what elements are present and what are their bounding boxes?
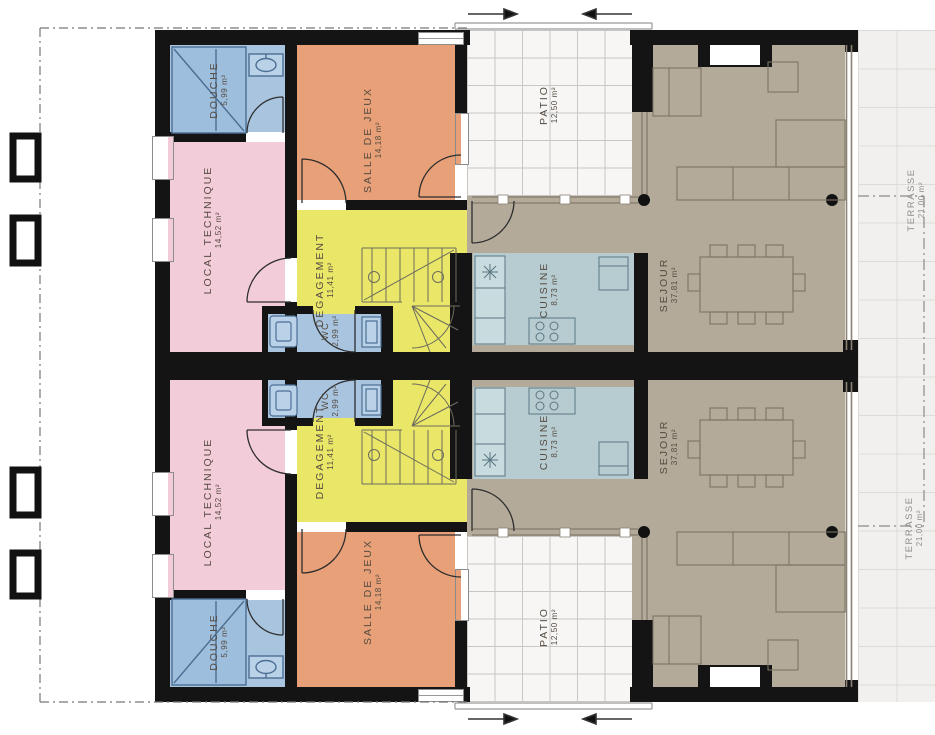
window-left-4: [152, 554, 174, 598]
wall: [381, 380, 393, 426]
wall: [285, 474, 297, 687]
fireplace-niche-bottom: [710, 667, 760, 687]
window-patio-bottom: [455, 569, 469, 621]
room-label-salle-de-jeux-bottom: SALLE DE JEUX14,18 m²: [354, 522, 390, 662]
wall: [450, 380, 472, 479]
room-label-patio-bottom: PATIO12,50 m²: [530, 557, 566, 697]
wall: [843, 340, 858, 392]
window-left-3: [152, 472, 174, 516]
room-label-patio-top: PATIO12,50 m²: [530, 35, 566, 175]
room-label-local-technique-bottom: LOCAL TECHNIQUE14,52 m²: [194, 432, 230, 572]
wall: [632, 45, 653, 112]
window-left-2: [152, 218, 174, 262]
room-label-sejour-bottom: SEJOUR37,81 m²: [650, 377, 686, 517]
wall: [634, 380, 648, 479]
wall: [845, 30, 858, 52]
fireplace-niche-top: [710, 45, 760, 65]
window-patio-top: [455, 113, 469, 165]
room-label-wc-bottom: WC2,99 m²: [312, 331, 348, 471]
room-label-salle-de-jeux-top: SALLE DE JEUX14,18 m²: [354, 70, 390, 210]
room-label-douche-top: DOUCHE5,99 m²: [200, 20, 236, 160]
room-label-cuisine-bottom: CUISINE8,73 m²: [530, 372, 566, 512]
party-wall: [155, 352, 855, 380]
floor-plan: DOUCHE5,99 m² LOCAL TECHNIQUE14,52 m² SA…: [0, 0, 935, 735]
room-label-terrasse-bottom: TERRASSE21,00 m²: [896, 458, 932, 598]
wall: [450, 253, 472, 352]
window-top: [418, 32, 464, 45]
boundary-markers: [13, 136, 38, 596]
room-label-sejour-top: SEJOUR37,81 m²: [650, 215, 686, 355]
wall: [632, 620, 653, 687]
wall: [262, 306, 268, 352]
wall: [381, 306, 393, 352]
room-label-douche-bottom: DOUCHE5,99 m²: [200, 572, 236, 712]
wall: [634, 253, 648, 352]
room-label-cuisine-top: CUISINE8,73 m²: [530, 220, 566, 360]
wall: [845, 680, 858, 702]
window-left-1: [152, 136, 174, 180]
wall: [262, 380, 268, 426]
wall: [285, 45, 297, 258]
window-bottom: [418, 689, 464, 702]
room-label-terrasse-top: TERRASSE21,00 m²: [898, 130, 934, 270]
room-label-local-technique-top: LOCAL TECHNIQUE14,52 m²: [194, 160, 230, 300]
